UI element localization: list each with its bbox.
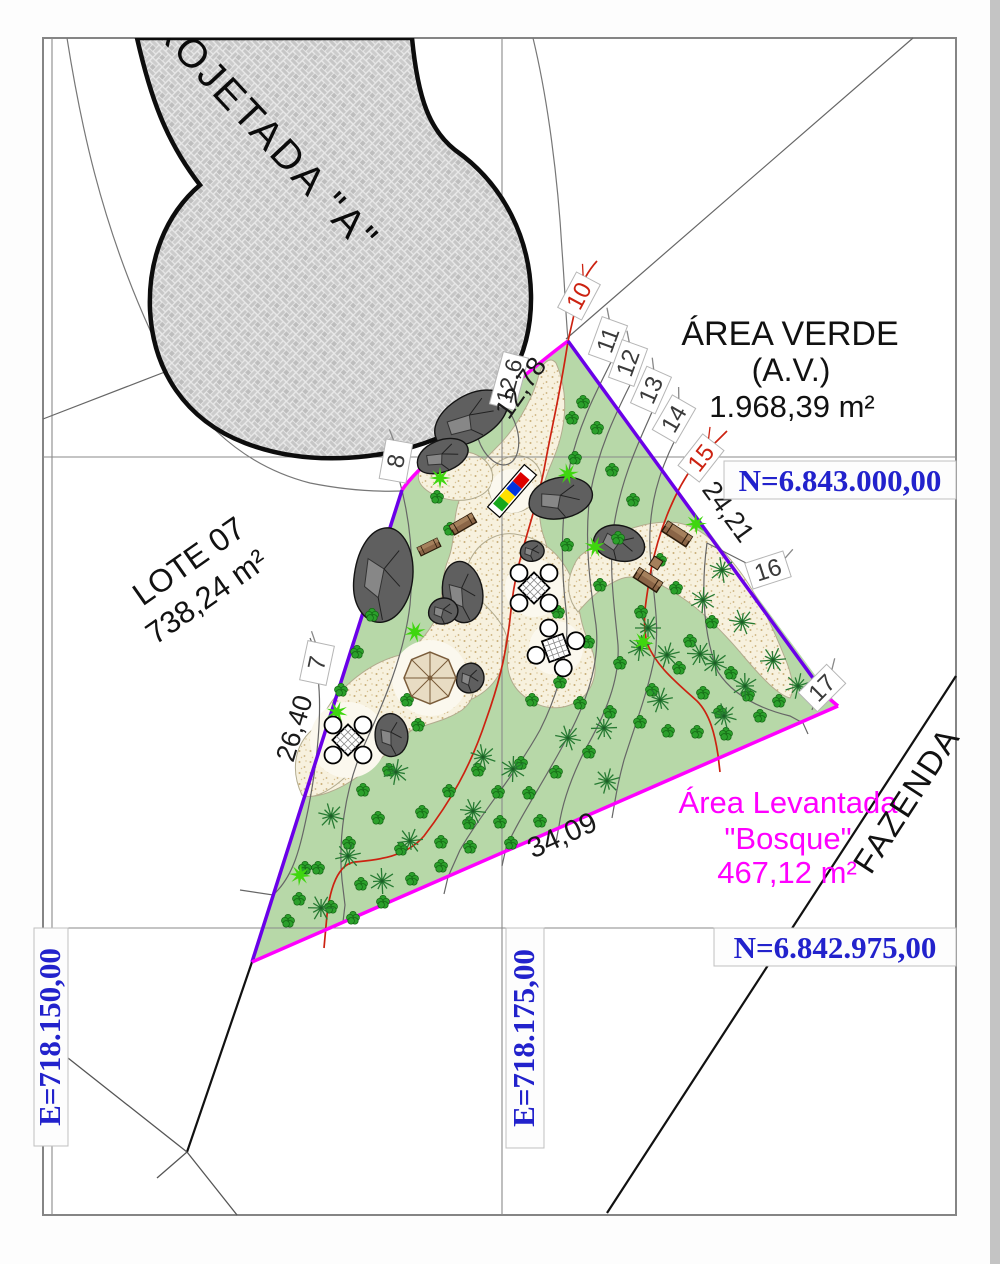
grid-label-e-left: E=718.150,00 xyxy=(32,928,68,1146)
site-plan-drawing: ROJETADA "A" xyxy=(0,0,1000,1264)
rock xyxy=(429,598,458,624)
bosque-line1: Área Levantada xyxy=(679,785,899,820)
area-verde-subtitle: (A.V.) xyxy=(752,352,831,388)
survey-plan-page: ROJETADA "A" xyxy=(0,0,1000,1264)
svg-text:N=6.843.000,00: N=6.843.000,00 xyxy=(739,463,942,498)
svg-text:E=718.150,00: E=718.150,00 xyxy=(32,948,67,1126)
bosque-value: 467,12 m² xyxy=(717,855,857,890)
page-edge-shadow xyxy=(990,0,1000,1264)
svg-text:E=718.175,00: E=718.175,00 xyxy=(506,949,541,1127)
grid-label-e-mid: E=718.175,00 xyxy=(506,928,544,1148)
svg-text:N=6.842.975,00: N=6.842.975,00 xyxy=(734,930,937,965)
grid-label-n-bottom: N=6.842.975,00 xyxy=(714,928,956,966)
rock xyxy=(456,663,484,693)
area-verde-value: 1.968,39 m² xyxy=(709,389,874,424)
rock xyxy=(520,541,544,561)
picnic-table xyxy=(511,565,558,612)
grid-label-n-top: N=6.843.000,00 xyxy=(724,461,956,499)
bosque-line2: "Bosque" xyxy=(724,821,851,856)
area-verde-title: ÁREA VERDE xyxy=(681,315,898,353)
bush-icon xyxy=(429,467,451,489)
picnic-table xyxy=(325,717,372,764)
gazebo xyxy=(404,652,456,704)
